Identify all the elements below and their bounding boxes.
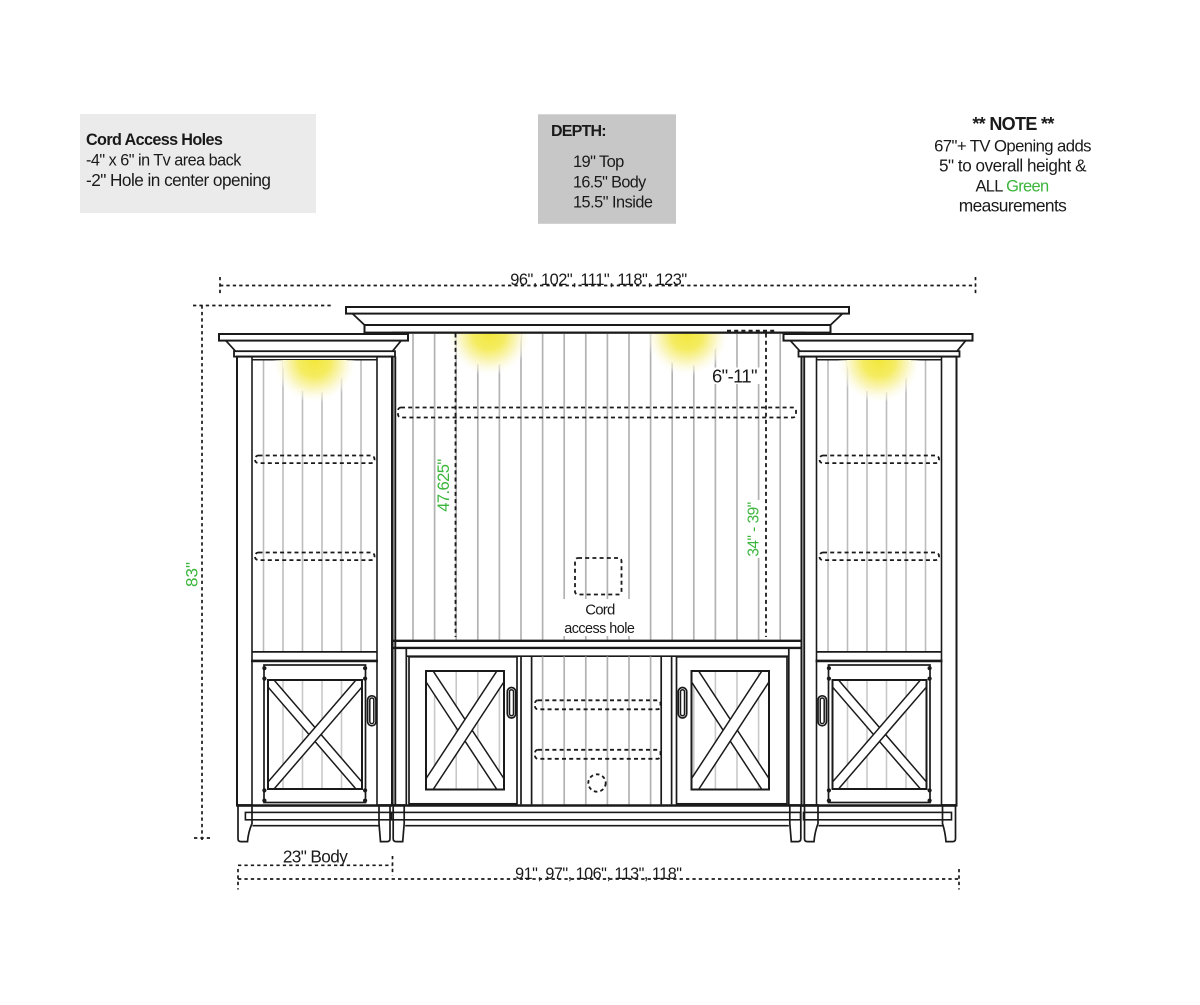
svg-text:-2" Hole in center opening: -2" Hole in center opening	[86, 170, 270, 190]
svg-text:** NOTE **: ** NOTE **	[972, 114, 1054, 134]
svg-text:ALL Green: ALL Green	[975, 177, 1049, 195]
svg-text:47.625": 47.625"	[434, 459, 453, 512]
svg-text:91", 97", 106", 113", 118": 91", 97", 106", 113", 118"	[515, 865, 682, 883]
svg-text:5" to overall height &: 5" to overall height &	[939, 156, 1087, 175]
svg-text:16.5" Body: 16.5" Body	[573, 173, 647, 191]
svg-text:96", 102", 111", 118", 123": 96", 102", 111", 118", 123"	[510, 271, 687, 289]
svg-text:83": 83"	[183, 562, 202, 587]
svg-text:Cord: Cord	[585, 602, 615, 619]
svg-text:6"-11": 6"-11"	[712, 366, 757, 387]
svg-text:67"+ TV Opening adds: 67"+ TV Opening adds	[934, 136, 1091, 155]
svg-text:measurements: measurements	[959, 195, 1067, 215]
svg-text:-4" x 6" in Tv area back: -4" x 6" in Tv area back	[86, 152, 242, 170]
svg-text:19" Top: 19" Top	[573, 153, 624, 171]
svg-text:access hole: access hole	[564, 621, 635, 637]
svg-text:Cord Access Holes: Cord Access Holes	[86, 131, 223, 149]
svg-text:34" - 39": 34" - 39"	[746, 502, 763, 556]
svg-text:23" Body: 23" Body	[283, 847, 348, 867]
svg-text:15.5" Inside: 15.5" Inside	[573, 194, 653, 212]
svg-text:DEPTH:: DEPTH:	[551, 123, 606, 140]
